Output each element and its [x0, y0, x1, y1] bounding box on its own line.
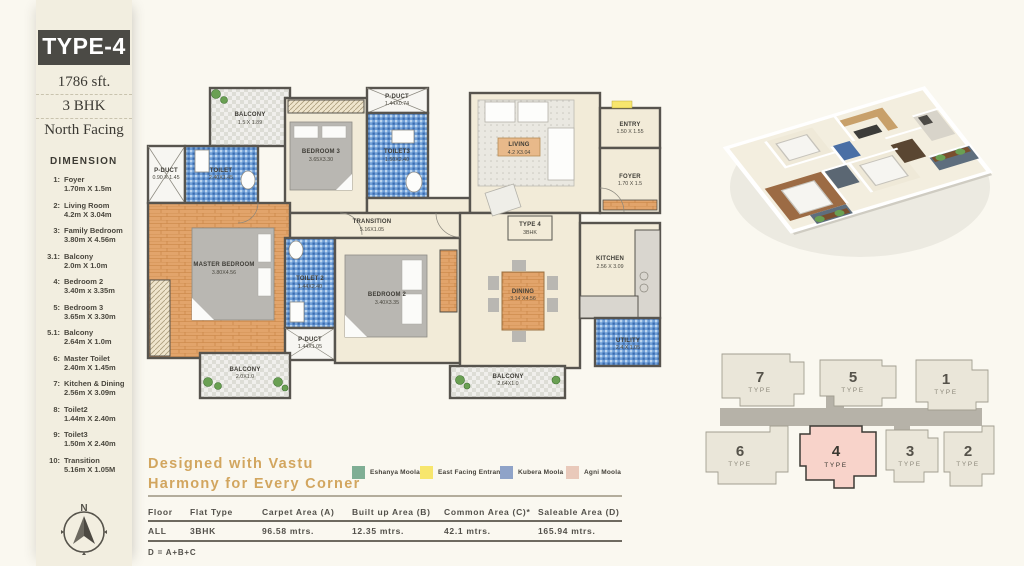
cell-floor: ALL	[148, 521, 190, 541]
legend-agni-moola: Agni Moola	[566, 466, 621, 479]
svg-text:5: 5	[849, 369, 857, 386]
svg-text:TYPE: TYPE	[956, 461, 979, 468]
label-foyer: FOYER	[619, 174, 641, 180]
legend-eshanya-moola: Eshanya Moola	[352, 466, 420, 479]
compass-icon: N	[54, 496, 114, 558]
east-entrance-swatch	[420, 466, 433, 479]
label-living: LIVING	[508, 142, 529, 148]
type-box	[508, 216, 552, 240]
label-balcony-bc: BALCONY	[492, 374, 523, 380]
area-table-header-row: Floor Flat Type Carpet Area (A) Built up…	[148, 504, 622, 521]
bed-bedroom3	[290, 122, 352, 190]
unit-specs: 1786 sft. 3 BHK North Facing	[36, 71, 132, 142]
cell-carpet-area: 96.58 mtrs.	[262, 521, 352, 541]
dimension-item: 3:Family Bedroom3.80m X 4.56m	[42, 226, 132, 244]
label-bedroom2: BEDROOM 2	[368, 292, 407, 298]
floor-plan-sheet: TYPE-4 1786 sft. 3 BHK North Facing DIME…	[0, 0, 1024, 566]
col-flat-type: Flat Type	[190, 504, 262, 521]
dimension-item: 2:Living Room4.2m X 3.04m	[42, 201, 132, 219]
dimension-item: 4:Bedroom 23.40m x 3.35m	[42, 277, 132, 295]
vastu-row: Designed with Vastu Harmony for Every Co…	[148, 452, 622, 497]
cell-flat-type: 3BHK	[190, 521, 262, 541]
dimension-item: 8:Toilet21.44m X 2.40m	[42, 405, 132, 423]
compass-north-label: N	[80, 503, 87, 514]
svg-text:1.44X1.05: 1.44X1.05	[298, 344, 322, 350]
type-badge: TYPE-4	[38, 30, 130, 65]
keyplan-unit-1[interactable]	[916, 360, 988, 410]
cell-saleable-area: 165.94 mtrs.	[538, 521, 622, 541]
label-entry: ENTRY	[619, 122, 640, 128]
wardrobe-bedroom2	[440, 250, 457, 312]
wardrobe-master	[150, 280, 170, 356]
room-entry	[600, 108, 660, 148]
wardrobe-bedroom3	[288, 100, 364, 113]
dimension-item: 10:Transition5.16m X 1.05M	[42, 456, 132, 474]
label-type-box-line1: TYPE 4	[519, 222, 541, 228]
label-pduct-mid: P-DUCT	[298, 337, 322, 343]
agni-swatch	[566, 466, 579, 479]
dimension-item: 7:Kitchen & Dining2.56m X 3.09m	[42, 379, 132, 397]
svg-text:0.90 X 1.45: 0.90 X 1.45	[152, 175, 179, 181]
legend-east-facing-entrance: East Facing Entrance	[420, 466, 508, 479]
room-transition	[285, 213, 470, 238]
svg-text:1.5 X 1.89: 1.5 X 1.89	[238, 120, 262, 126]
svg-text:2: 2	[964, 443, 972, 460]
unit-facing: North Facing	[36, 118, 132, 142]
label-balcony-top: BALCONY	[234, 112, 265, 118]
sidebar: TYPE-4 1786 sft. 3 BHK North Facing DIME…	[36, 0, 132, 566]
svg-text:3.65X3.30: 3.65X3.30	[309, 157, 333, 163]
label-transition: TRANSITION	[353, 219, 392, 225]
col-builtup-area: Built up Area (B)	[352, 504, 444, 521]
label-toilet3: TOILET3	[384, 149, 410, 155]
vastu-tagline: Designed with Vastu Harmony for Every Co…	[148, 454, 361, 494]
svg-text:1: 1	[942, 371, 950, 388]
col-saleable-area: Saleable Area (D)	[538, 504, 622, 521]
key-plan: 7 TYPE 5 TYPE 1 TYPE 6 TYPE 4 TYPE 3 TYP…	[698, 350, 998, 494]
label-balcony-bl: BALCONY	[229, 367, 260, 373]
label-bedroom3: BEDROOM 3	[302, 149, 341, 155]
area-table-row: ALL 3BHK 96.58 mtrs. 12.35 mtrs. 42.1 mt…	[148, 521, 622, 541]
svg-text:3.40X3.35: 3.40X3.35	[375, 300, 399, 306]
label-dining: DINING	[512, 289, 534, 295]
svg-text:1.50 X 1.55: 1.50 X 1.55	[616, 129, 643, 135]
label-master-toilet: TOILET	[210, 168, 233, 174]
label-type-box-line2: 3BHK	[523, 230, 537, 236]
label-pduct-left: P-DUCT	[154, 168, 178, 174]
label-master-bedroom: MASTER BEDROOM	[193, 262, 254, 268]
svg-text:TYPE: TYPE	[824, 462, 847, 469]
dimension-item: 3.1:Balcony2.0m X 1.0m	[42, 252, 132, 270]
svg-text:1.70 X 1.5: 1.70 X 1.5	[618, 181, 642, 187]
svg-text:3: 3	[906, 443, 914, 460]
svg-text:TYPE: TYPE	[748, 387, 771, 394]
legend-kubera-moola: Kubera Moola	[500, 466, 563, 479]
svg-text:4.2 X3.04: 4.2 X3.04	[508, 150, 531, 156]
table-footnote: D = A+B+C	[148, 548, 622, 557]
keyplan-unit-6[interactable]	[706, 426, 788, 484]
svg-text:2.0X1.0: 2.0X1.0	[236, 374, 254, 380]
dimension-item: 6:Master Toilet2.40m X 1.45m	[42, 354, 132, 372]
area-table: Floor Flat Type Carpet Area (A) Built up…	[148, 504, 622, 557]
unit-bhk: 3 BHK	[36, 94, 132, 118]
svg-text:TYPE: TYPE	[841, 387, 864, 394]
svg-text:5.16X1.05: 5.16X1.05	[360, 227, 384, 233]
svg-text:TYPE: TYPE	[934, 389, 957, 396]
svg-text:1.44X2.40: 1.44X2.40	[298, 284, 322, 290]
dimension-item: 1:Foyer1.70m X 1.5m	[42, 175, 132, 193]
svg-text:3.14 X4.56: 3.14 X4.56	[510, 296, 536, 302]
svg-text:TYPE: TYPE	[728, 461, 751, 468]
col-common-area: Common Area (C)*	[444, 504, 538, 521]
foyer-cabinet	[603, 200, 657, 210]
col-carpet-area: Carpet Area (A)	[262, 504, 352, 521]
dimension-item: 5.1:Balcony2.64m X 1.0m	[42, 328, 132, 346]
svg-text:6: 6	[736, 443, 744, 460]
label-toilet2: TOILET 2	[296, 276, 324, 282]
dimension-item: 9:Toilet31.50m X 2.40m	[42, 430, 132, 448]
svg-text:2.40X1.45: 2.40X1.45	[209, 175, 233, 181]
unit-area: 1786 sft.	[36, 71, 132, 94]
cell-builtup-area: 12.35 mtrs.	[352, 521, 444, 541]
eshanya-swatch	[352, 466, 365, 479]
dimension-list: 1:Foyer1.70m X 1.5m 2:Living Room4.2m X …	[42, 175, 132, 474]
svg-text:7: 7	[756, 369, 764, 386]
dimension-heading: DIMENSION	[50, 156, 132, 167]
isometric-view	[700, 52, 1002, 300]
svg-text:1.44X0.74: 1.44X0.74	[385, 101, 409, 107]
cell-common-area: 42.1 mtrs.	[444, 521, 538, 541]
kubera-swatch	[500, 466, 513, 479]
floor-plan: BALCONY 1.5 X 1.89 P-DUCT 0.90 X 1.45 TO…	[140, 80, 672, 422]
label-kitchen: KITCHEN	[596, 256, 624, 262]
svg-text:TYPE: TYPE	[898, 461, 921, 468]
svg-text:4: 4	[832, 443, 841, 460]
svg-text:2.64X1.0: 2.64X1.0	[497, 381, 518, 387]
svg-text:2.4 X 1.05: 2.4 X 1.05	[616, 345, 640, 351]
entry-east-marker	[612, 101, 632, 108]
label-pduct-top: P-DUCT	[385, 94, 409, 100]
svg-text:1.50X2.40: 1.50X2.40	[385, 157, 409, 163]
dimension-item: 5:Bedroom 33.65m X 3.30m	[42, 303, 132, 321]
svg-text:2.56 X 3.09: 2.56 X 3.09	[596, 264, 623, 270]
kitchen-counter-bottom	[580, 296, 638, 318]
col-floor: Floor	[148, 504, 190, 521]
label-utility: UTILITY	[616, 338, 640, 344]
svg-text:3.80X4.56: 3.80X4.56	[212, 270, 236, 276]
